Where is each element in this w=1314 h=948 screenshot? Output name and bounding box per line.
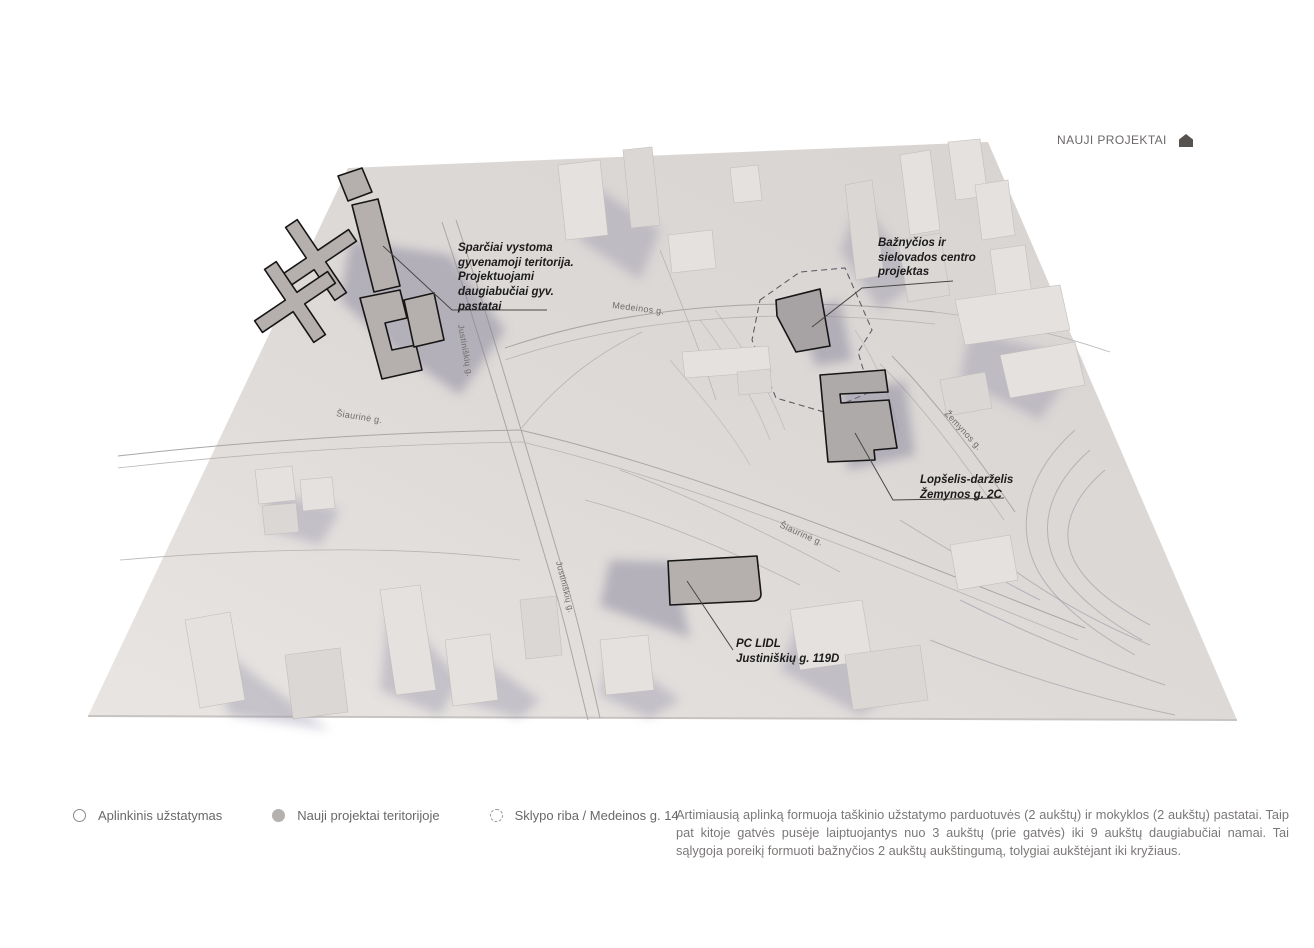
legend-item-new-projects: Nauji projektai teritorijoje [272,808,439,823]
annotation-church-project: Bažnyčios ir sielovados centro projektas [878,236,976,280]
description-text: Artimiausią aplinką formuoja taškinio už… [676,806,1289,860]
legend-item-plot-boundary: Sklypo riba / Medeinos g. 14 [490,808,679,823]
legend-label: Nauji projektai teritorijoje [297,808,439,823]
annotation-lidl-store: PC LIDL Justiniškių g. 119D [736,637,839,666]
legend-label: Sklypo riba / Medeinos g. 14 [515,808,679,823]
header: NAUJI PROJEKTAI [1057,133,1193,147]
legend-label: Aplinkinis užstatymas [98,808,222,823]
house-icon [1179,134,1193,147]
legend: Aplinkinis užstatymas Nauji projektai te… [73,808,679,823]
outline-circle-icon [73,809,86,822]
terrain-plane [88,142,1237,720]
dashed-circle-icon [490,809,503,822]
lidl-building [668,556,761,605]
filled-circle-icon [272,809,285,822]
annotation-residential-territory: Sparčiai vystoma gyvenamoji teritorija. … [458,241,574,315]
kindergarten-building [820,370,897,462]
header-title: NAUJI PROJEKTAI [1057,133,1167,147]
annotation-kindergarten: Lopšelis-darželis Žemynos g. 2C [920,473,1013,502]
legend-item-surrounding-buildings: Aplinkinis užstatymas [73,808,222,823]
